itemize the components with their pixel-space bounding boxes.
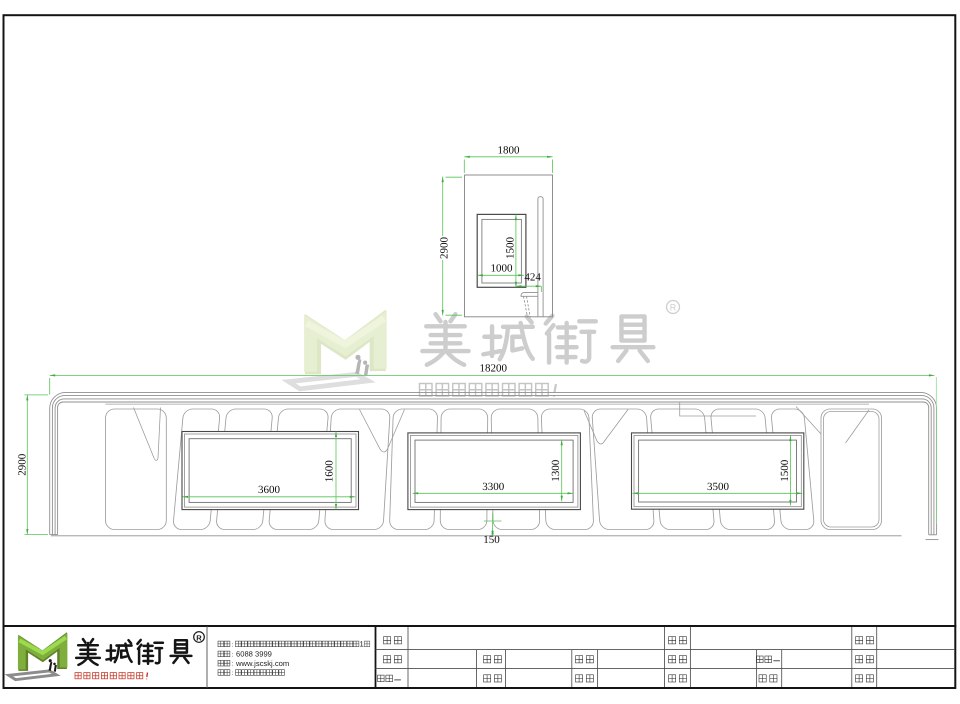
svg-text:150: 150: [483, 534, 500, 546]
svg-text::: :: [232, 641, 234, 648]
svg-text:3300: 3300: [482, 481, 505, 493]
svg-text::: :: [232, 670, 234, 677]
svg-text:18200: 18200: [479, 363, 507, 375]
svg-text:1500: 1500: [505, 237, 517, 260]
svg-text:2900: 2900: [439, 237, 451, 260]
svg-text:424: 424: [524, 271, 541, 283]
svg-text:1600: 1600: [323, 460, 335, 483]
svg-text:1300: 1300: [550, 459, 562, 482]
svg-text::: :: [232, 661, 234, 668]
svg-text:1000: 1000: [491, 263, 514, 275]
svg-text:R: R: [196, 634, 202, 643]
svg-text:1500: 1500: [779, 459, 791, 482]
svg-text:6088 3999: 6088 3999: [236, 650, 272, 659]
svg-text:1: 1: [360, 640, 364, 649]
svg-text:2900: 2900: [17, 453, 29, 476]
svg-text:1800: 1800: [498, 144, 521, 156]
svg-text:R: R: [670, 303, 677, 313]
svg-text:3600: 3600: [258, 484, 281, 496]
svg-text::: :: [232, 651, 234, 658]
svg-text:www.jscskj.com: www.jscskj.com: [235, 659, 289, 668]
svg-text:3500: 3500: [707, 481, 730, 493]
